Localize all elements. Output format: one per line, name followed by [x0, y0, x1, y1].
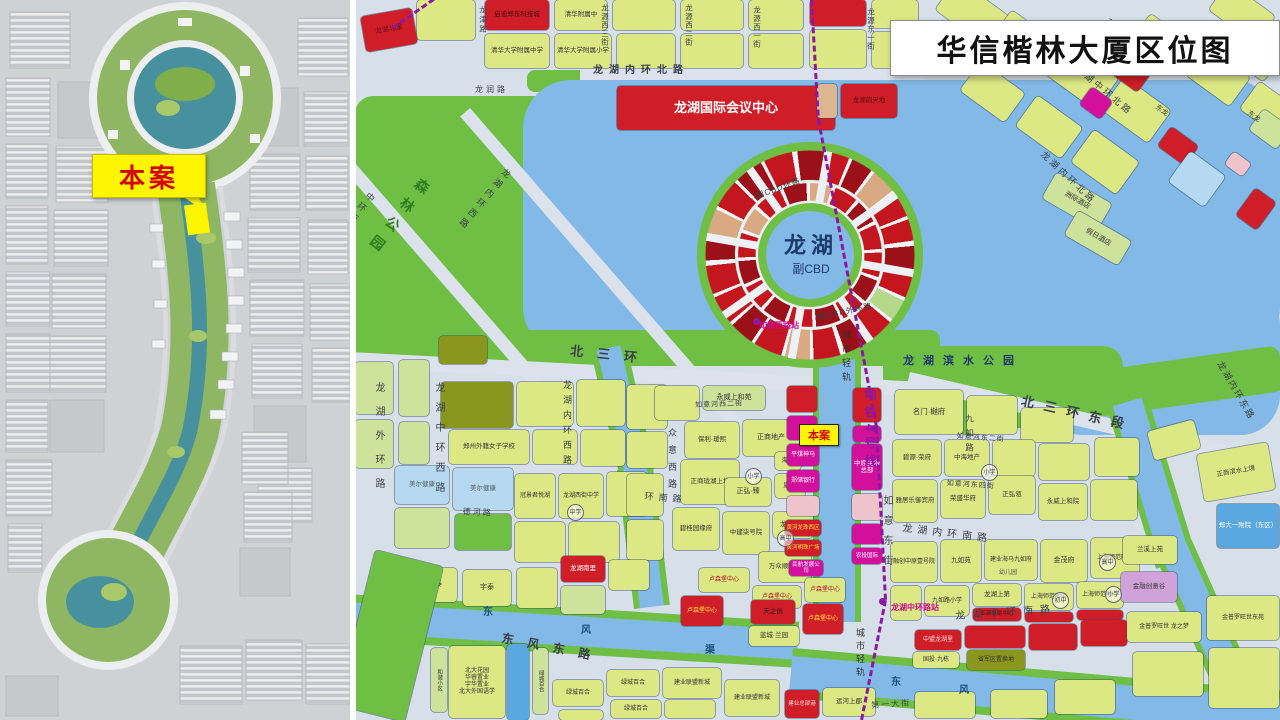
- road-label: 众意西路: [667, 428, 676, 496]
- road-label: 城市轻轨: [841, 330, 850, 386]
- road-label: 北三环东段: [1020, 394, 1135, 433]
- metro-station-dot: [871, 425, 878, 432]
- road-label: 龙湖内环西路: [562, 380, 571, 470]
- road-label: 龙湖滨水公园: [903, 356, 1023, 367]
- road-label: 龙源东一街: [867, 8, 875, 51]
- road-label: 北三环: [570, 344, 652, 365]
- case-parcel: [184, 203, 210, 236]
- road-label: 风: [581, 626, 591, 636]
- road-label: 龙润路: [475, 86, 508, 94]
- school-badge: 小学: [981, 464, 998, 481]
- road-label: 如意河东四街: [947, 480, 995, 490]
- station-label: 如意西路站: [759, 322, 799, 330]
- road-label: 龙源西三街: [601, 4, 609, 47]
- road-label: 中环西路: [355, 190, 376, 236]
- school-badge: 高中: [777, 530, 794, 547]
- road-label: 龙湖中环南路: [955, 605, 1057, 622]
- road-label: 如意河东二街: [957, 433, 1005, 443]
- page-title: 华信楷林大厦区位图: [890, 20, 1280, 76]
- road-label: 龙源西一街: [753, 6, 761, 49]
- road-label: 第一大街: [871, 699, 911, 710]
- masterplan-panel: 本案: [0, 0, 355, 720]
- road-label: 东: [891, 678, 901, 688]
- road-label: 龙湖内环东路: [1215, 360, 1256, 422]
- road-label: 德河路: [463, 508, 493, 518]
- metro-station-dot: [879, 598, 886, 605]
- road-label: 东龙: [1154, 104, 1169, 118]
- case-marker-left: 本案: [92, 154, 206, 198]
- screenshot-root: 本案: [0, 0, 1280, 720]
- road-label: 龙湖外环路: [373, 382, 383, 502]
- road-label: 龙湖内环南路: [902, 524, 993, 545]
- school-badge: 高中: [1099, 554, 1116, 571]
- road-label: 龙湖内环西路: [455, 166, 512, 232]
- school-badge: 小学: [1105, 586, 1122, 603]
- road-label: 龙津路: [479, 6, 487, 35]
- road-label: 城市轻轨: [855, 628, 864, 680]
- road-label: 东: [483, 608, 493, 618]
- station-label: 龙湖中环路站: [891, 604, 939, 612]
- road-label: 龙湖中环西路: [433, 382, 443, 502]
- school-badge: 初中: [1052, 592, 1069, 609]
- location-map: 龙湖北里启迪郑东科技城清华附属中清华大学附属中学清华大学附属小学龙湖国际会议中心…: [355, 0, 1280, 720]
- road-label: 东龙: [1246, 110, 1261, 124]
- road-label: 如意河西二街: [695, 400, 743, 409]
- case-marker-map: 本案: [799, 424, 839, 446]
- road-label: 东风东路: [501, 632, 605, 664]
- road-label: 风: [959, 686, 969, 696]
- road-label: 渠: [705, 646, 715, 656]
- road-label: 九如路: [965, 414, 974, 458]
- road-label: 幼儿园: [999, 570, 1017, 576]
- road-label: 副CBD外环路: [817, 302, 873, 321]
- panel-divider: [350, 0, 356, 720]
- road-label: 龙湖内环北路: [593, 66, 689, 76]
- road-label: 龙源西二街: [685, 4, 693, 47]
- metro-station-dot: [753, 318, 760, 325]
- masterplan-rendering: [0, 0, 355, 720]
- school-badge: 小学: [745, 468, 762, 485]
- road-label: 环南路: [644, 492, 687, 505]
- road-label: 龙湖内环北路: [1039, 150, 1098, 206]
- school-badge: 中学: [567, 504, 584, 521]
- road-label: 副CBD环路: [755, 177, 802, 201]
- road-label: 森林公园: [362, 176, 432, 260]
